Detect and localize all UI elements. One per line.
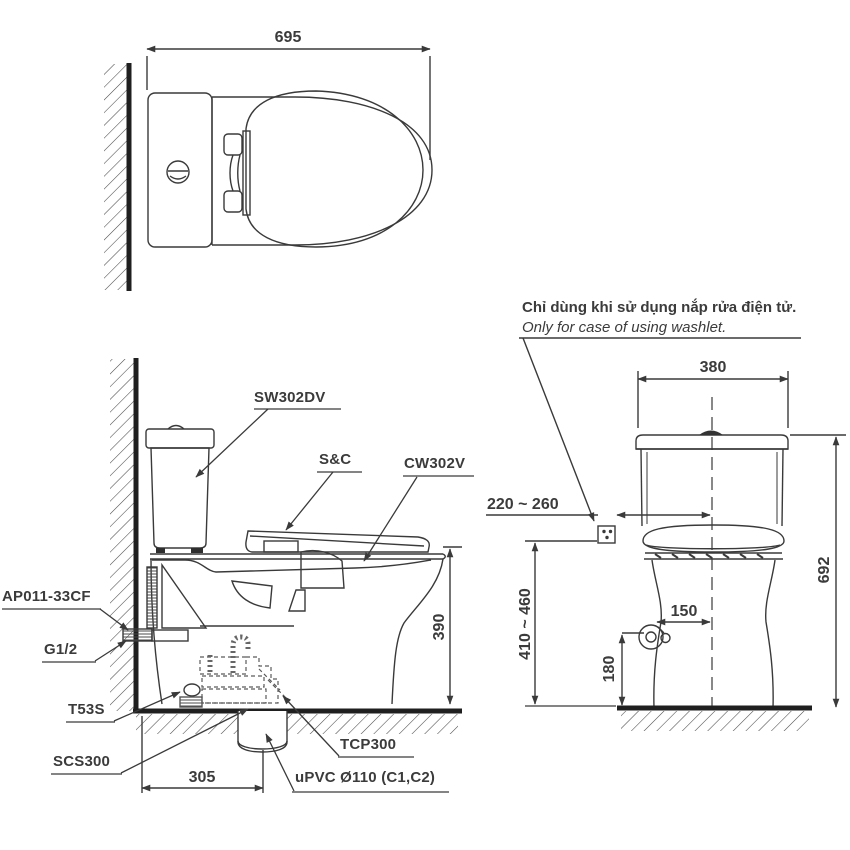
floor-hatch bbox=[621, 711, 809, 731]
valve-height-dim: 180 bbox=[601, 656, 619, 683]
stop-valve-symbol bbox=[639, 625, 670, 649]
supply-thread-label: G1/2 bbox=[44, 642, 77, 659]
seal-label: T53S bbox=[68, 702, 105, 719]
drain-pipe bbox=[238, 711, 287, 752]
wall-hatch bbox=[110, 359, 134, 711]
bowl-front bbox=[652, 560, 775, 708]
washlet-note-vi: Chỉ dùng khi sử dụng nắp rửa điện tử. bbox=[522, 299, 796, 316]
drain-offset-dim: 305 bbox=[189, 769, 216, 787]
seat-front bbox=[643, 525, 784, 559]
seat-side bbox=[246, 531, 429, 552]
valve-offset-dim: 150 bbox=[671, 603, 698, 621]
seal-target bbox=[184, 684, 200, 696]
top-width-dim: 695 bbox=[275, 29, 302, 47]
rim-height-dim: 390 bbox=[431, 614, 449, 641]
tank-model-label: SW302DV bbox=[254, 390, 325, 407]
flush-button bbox=[167, 161, 189, 183]
seat-model-label: S&C bbox=[319, 452, 351, 469]
front-view bbox=[486, 338, 846, 731]
top-view bbox=[104, 49, 432, 291]
outlet-height-dim: 410 ~ 460 bbox=[517, 588, 535, 660]
floor-hatch bbox=[136, 714, 458, 734]
drain-pipe-label: uPVC Ø110 (C1,C2) bbox=[295, 770, 435, 787]
stop-valve-label: AP011-33CF bbox=[2, 589, 91, 606]
hidden-trapway bbox=[200, 657, 288, 703]
tank-top bbox=[148, 93, 212, 247]
side-view bbox=[2, 358, 474, 793]
hidden-pipes bbox=[210, 637, 248, 673]
outlet-offset-dim: 220 ~ 260 bbox=[487, 496, 559, 514]
washlet-note-en: Only for case of using washlet. bbox=[522, 319, 726, 336]
washlet-outlet-box bbox=[598, 526, 615, 543]
drawing-geometry bbox=[0, 0, 850, 850]
technical-drawing-sheet: 695 SW302DV S&C CW302V AP011-33CF G1/2 T… bbox=[0, 0, 850, 850]
bowl-model-label: CW302V bbox=[404, 456, 465, 473]
wall-hatch bbox=[104, 64, 127, 290]
tank-width-dim: 380 bbox=[700, 359, 727, 377]
total-height-dim: 692 bbox=[816, 557, 834, 584]
flange-hatched bbox=[180, 697, 202, 707]
flange-label: TCP300 bbox=[340, 737, 396, 754]
bowl-side bbox=[151, 551, 443, 704]
connector-label: SCS300 bbox=[53, 754, 110, 771]
tank-side bbox=[146, 426, 214, 554]
